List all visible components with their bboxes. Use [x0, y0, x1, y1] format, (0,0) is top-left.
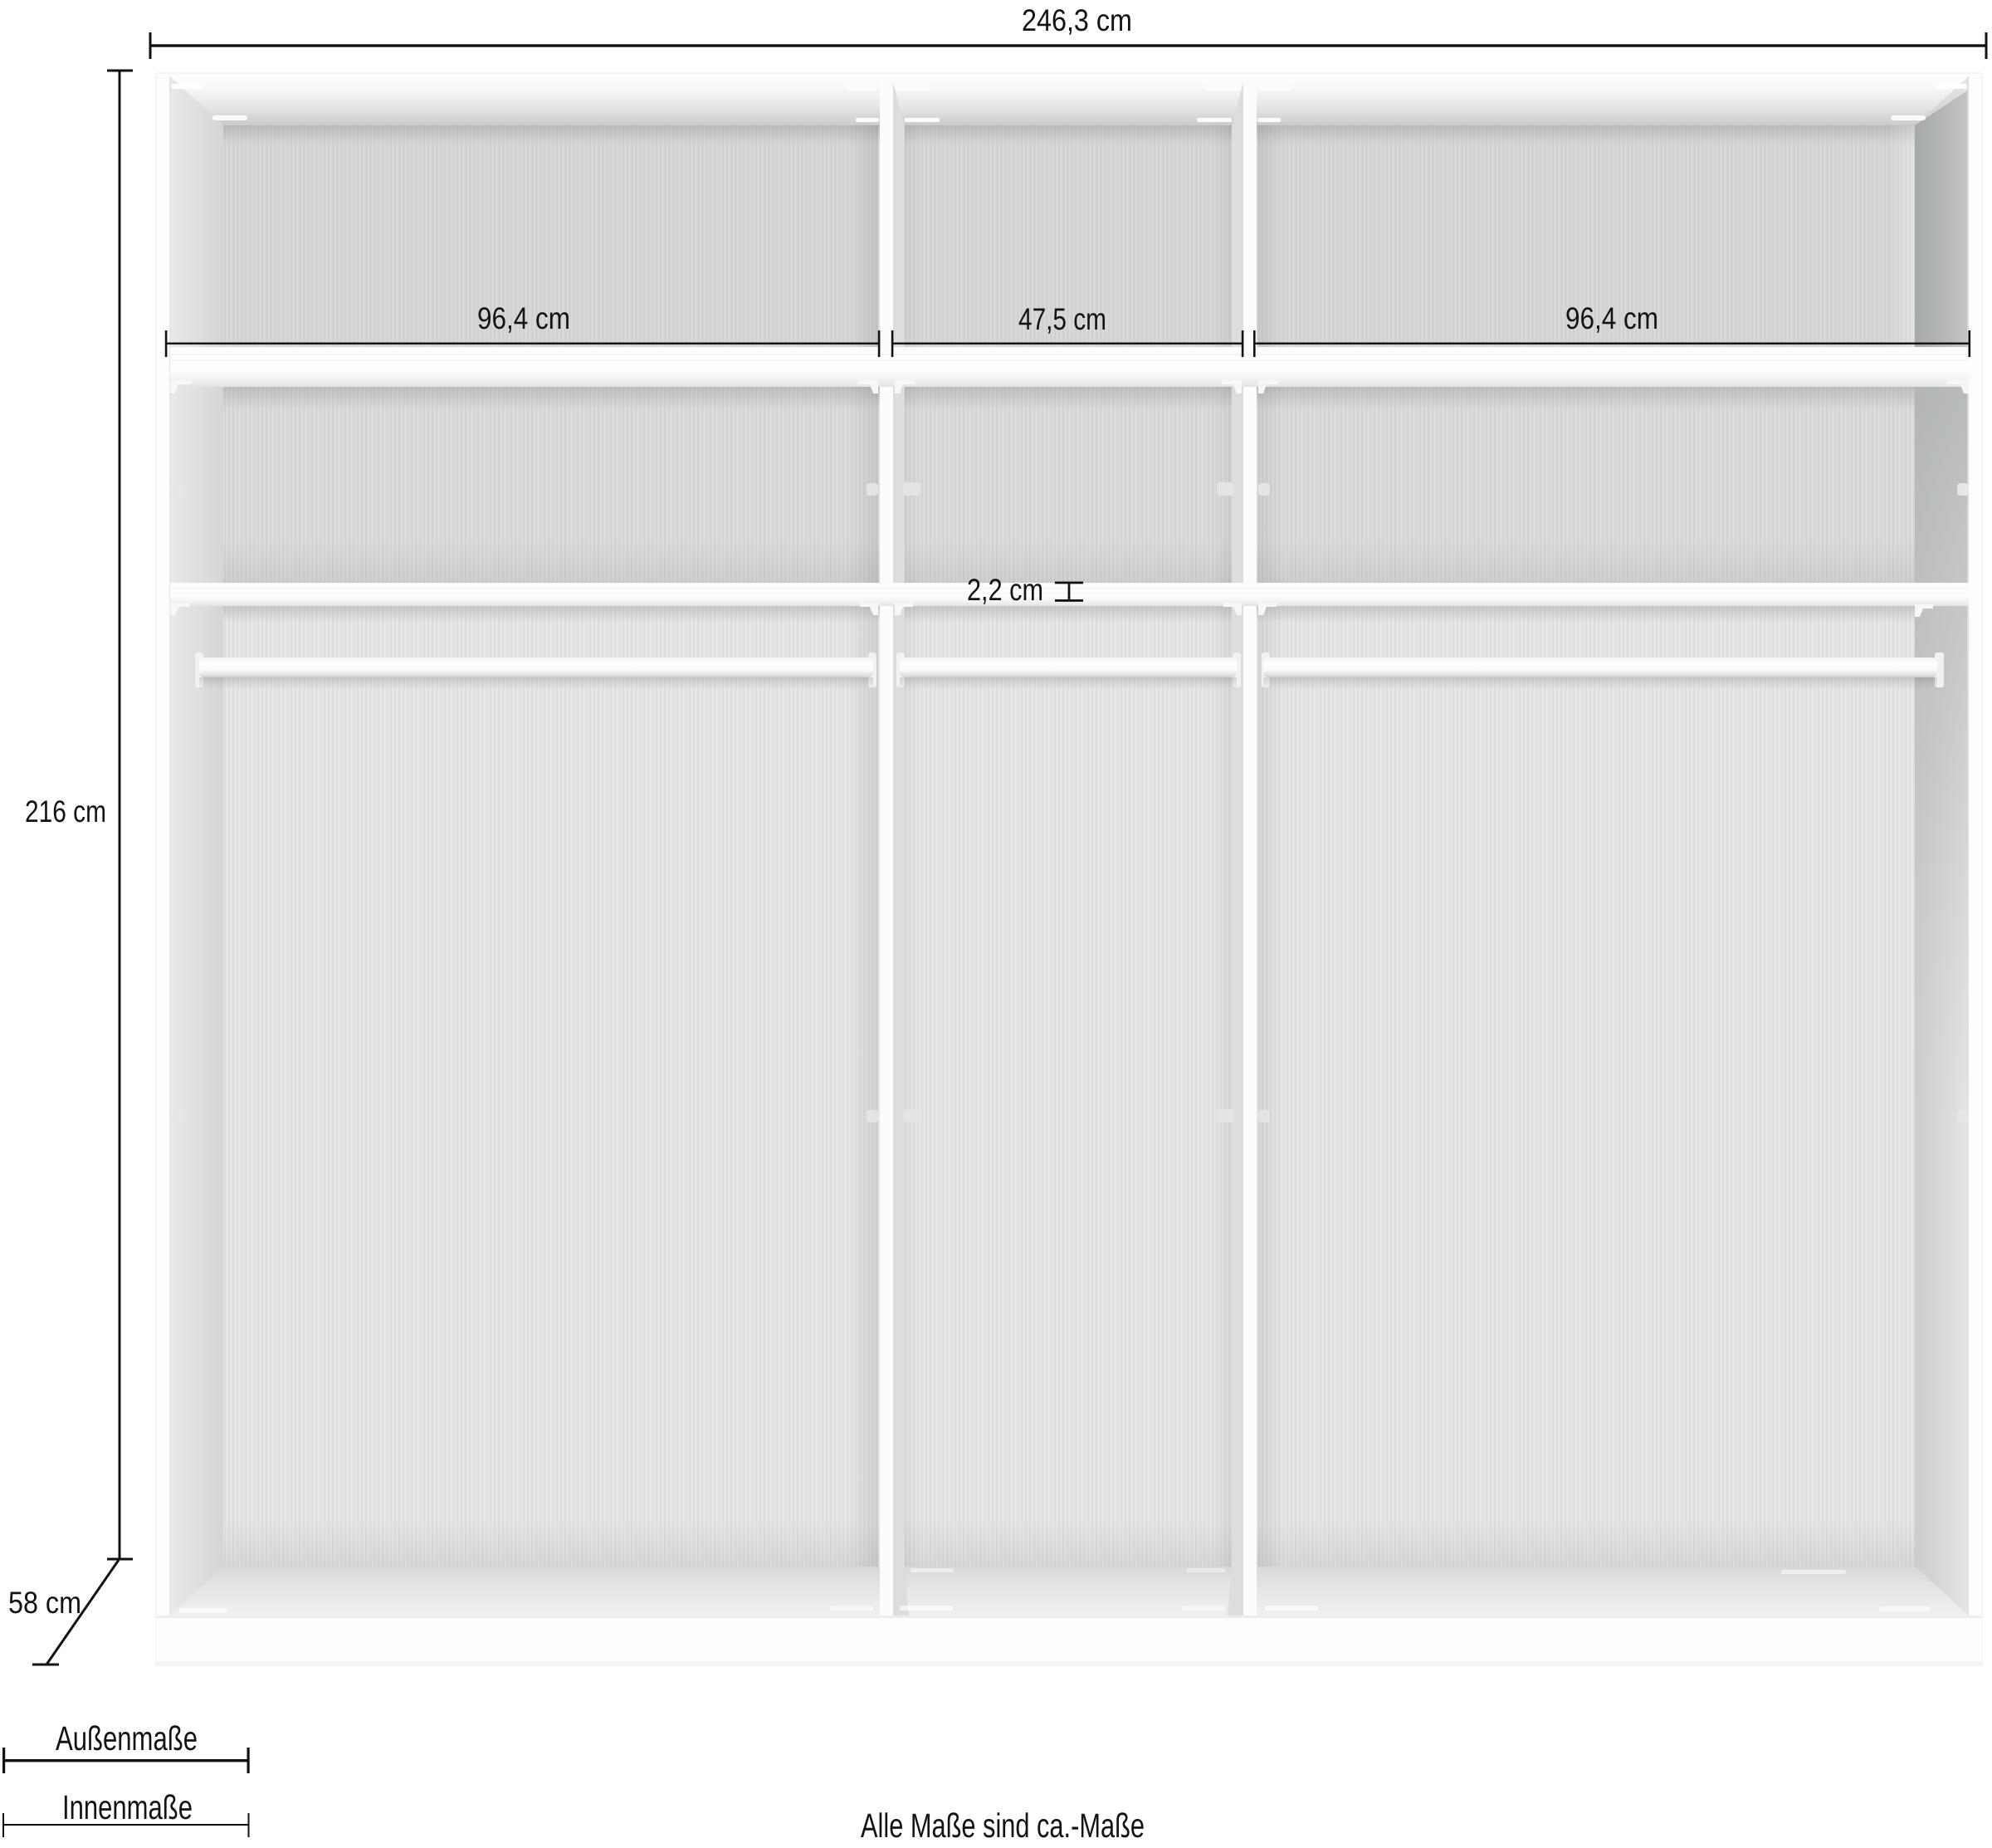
svg-text:96,4 cm: 96,4 cm — [477, 301, 570, 335]
svg-text:246,3 cm: 246,3 cm — [1022, 3, 1132, 37]
svg-text:47,5 cm: 47,5 cm — [1018, 302, 1106, 336]
svg-text:96,4 cm: 96,4 cm — [1565, 301, 1658, 335]
svg-text:216 cm: 216 cm — [25, 794, 106, 829]
svg-text:Innenmaße: Innenmaße — [62, 1788, 193, 1826]
svg-text:58 cm: 58 cm — [8, 1586, 81, 1620]
svg-text:2,2 cm: 2,2 cm — [967, 573, 1043, 607]
svg-text:Alle Maße sind ca.-Maße: Alle Maße sind ca.-Maße — [861, 1806, 1145, 1845]
svg-text:Außenmaße: Außenmaße — [56, 1719, 198, 1758]
